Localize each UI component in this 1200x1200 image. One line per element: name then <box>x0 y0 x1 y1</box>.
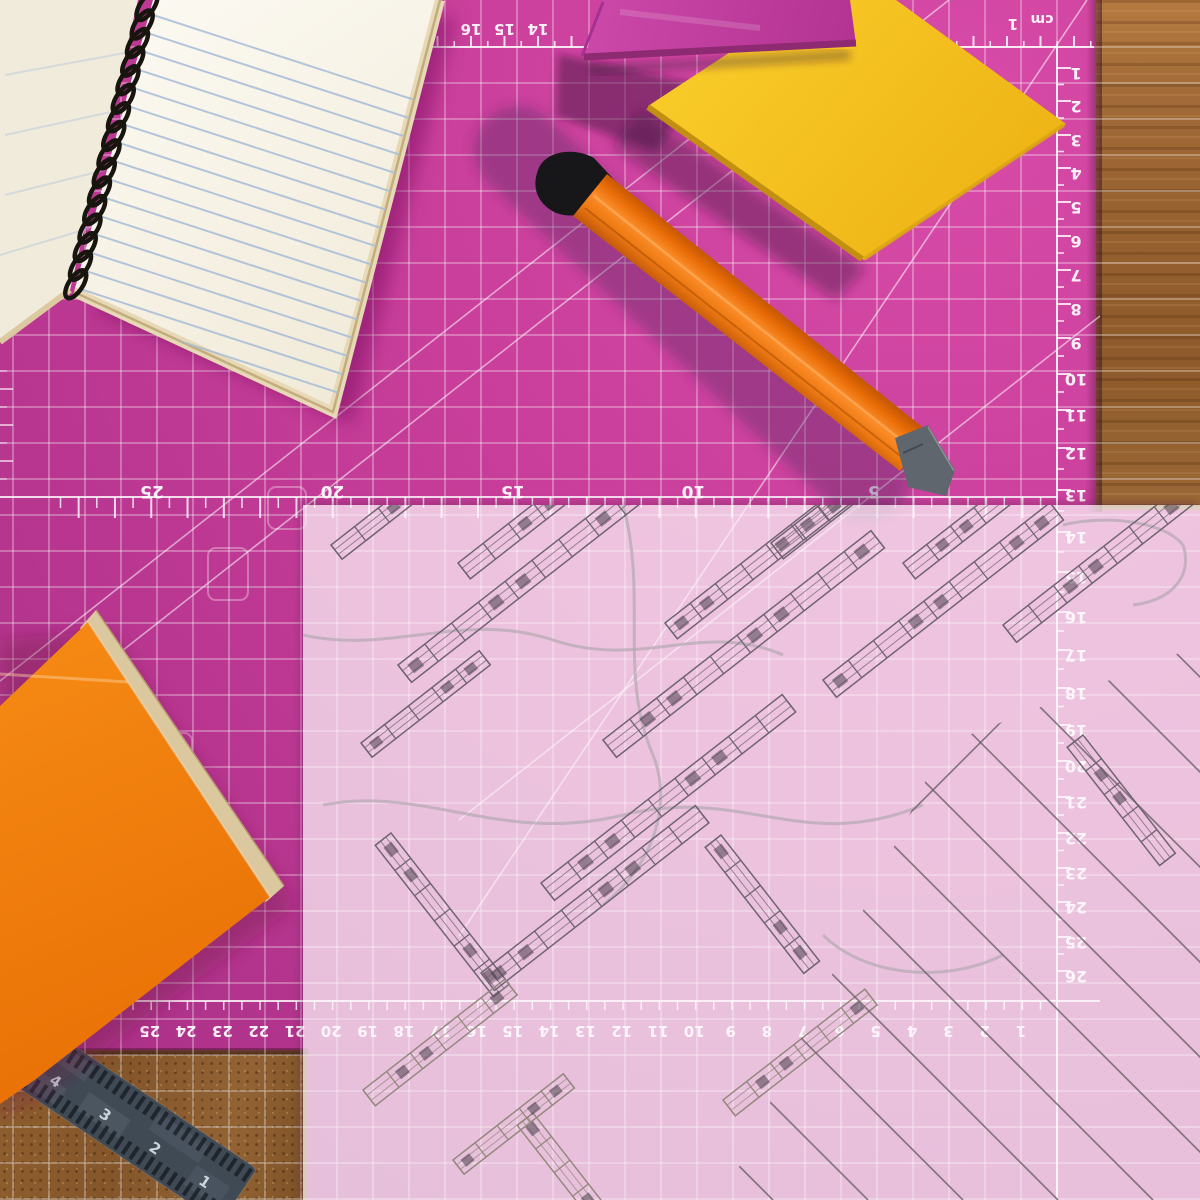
plan-building-row <box>453 1074 574 1174</box>
plan-building-row <box>1003 505 1193 642</box>
plan-building-row <box>823 505 1063 697</box>
plan-building-row <box>903 505 1081 579</box>
plan-building-row <box>541 695 796 901</box>
plan-building-row <box>481 806 709 991</box>
plan-building-row <box>361 651 490 758</box>
plan-building-row <box>375 833 509 997</box>
plan-building-row <box>331 505 484 559</box>
plan-building-row <box>458 505 672 579</box>
spiral-notebook <box>0 0 547 436</box>
plan-building-row <box>363 979 517 1106</box>
desk-scene: 1615141cm1234567891011121314151617181920… <box>0 0 1200 1200</box>
plan-plot-lattice <box>303 505 1200 1200</box>
plan-building-row <box>705 835 819 973</box>
blueprint-sheet <box>303 505 1200 1200</box>
plan-building-row <box>723 989 877 1116</box>
plan-building-row <box>398 505 653 682</box>
plan-building-row <box>665 505 879 639</box>
plan-roads <box>303 505 1186 972</box>
site-plan-drawing <box>303 505 1200 1200</box>
plan-building-row <box>603 531 884 758</box>
orange-notebook <box>0 610 296 1115</box>
plan-building-row <box>517 1113 625 1200</box>
